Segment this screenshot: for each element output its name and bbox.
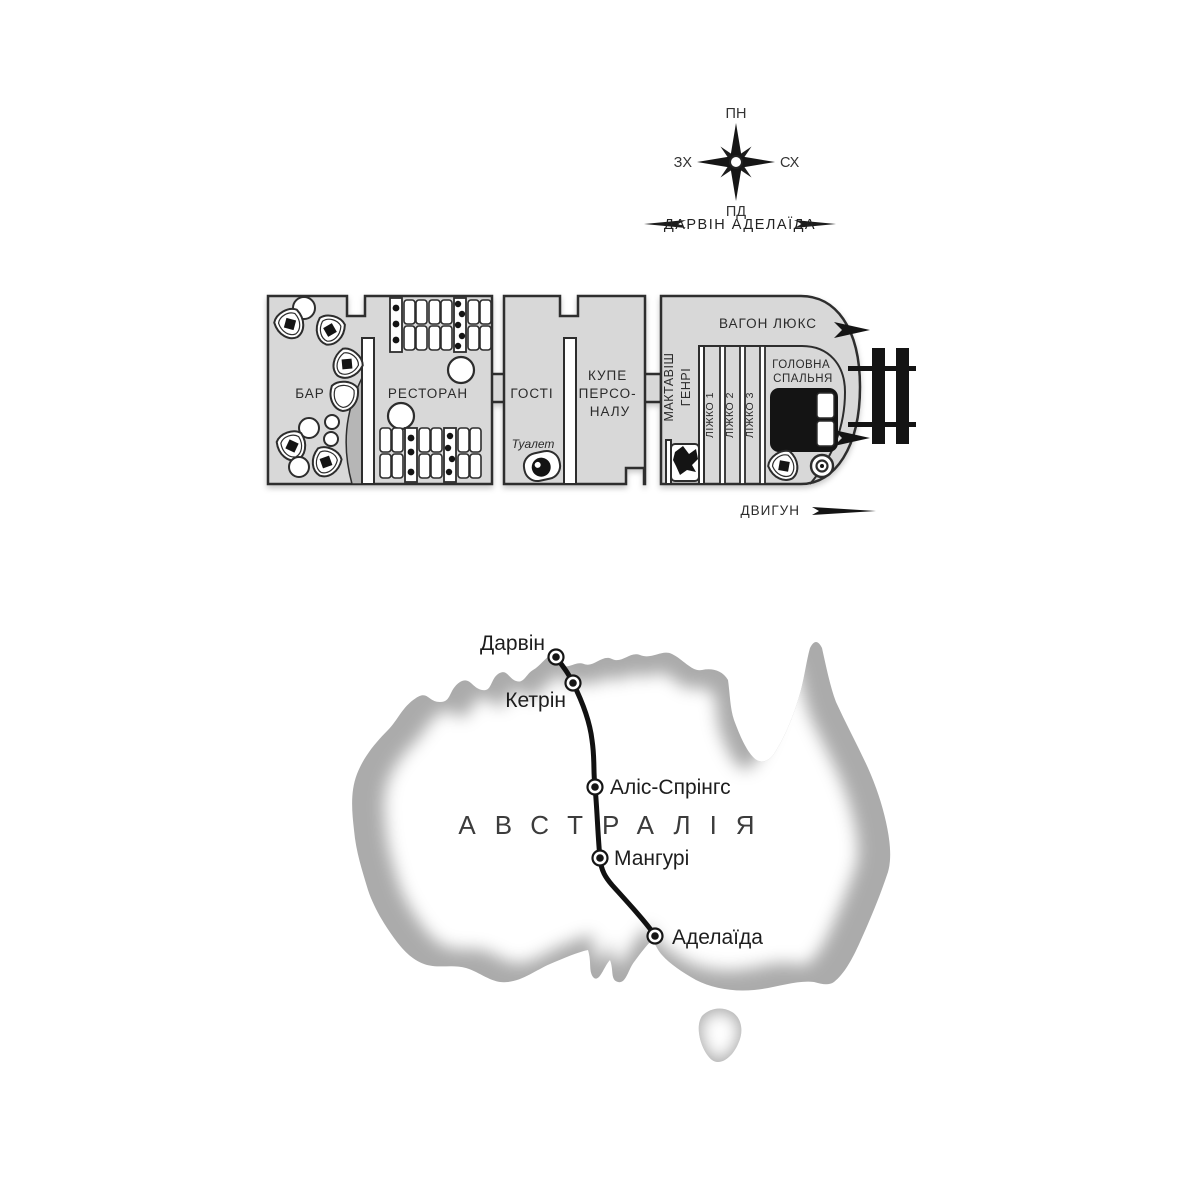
toilet-label: Туалет — [512, 437, 555, 451]
bar-label: БАР — [295, 386, 325, 401]
station-darwin-label: Дарвін — [480, 632, 545, 655]
page: ПН ПД ЗХ СХ ДАРВІН АДЕЛАЇДА — [0, 0, 1200, 1200]
train-floorplan: БАР РЕСТОРАН ГОСТІ КУПЕ ПЕРСО- НАЛУ Туал… — [252, 282, 932, 532]
master-bed-icon — [770, 388, 838, 452]
engine-label: ДВИГУН — [741, 503, 801, 518]
station-alice-springs-marker — [588, 780, 603, 795]
sink-icon — [811, 455, 833, 477]
station-manguri-marker — [593, 851, 608, 866]
station-katherine-marker — [566, 676, 581, 691]
compass-north-label: ПН — [726, 106, 747, 122]
mctavish-label-first: ГЕНРІ — [679, 368, 693, 406]
station-alice-springs-label: Аліс-Спрінгс — [610, 776, 731, 799]
station-adelaide-marker — [648, 929, 663, 944]
berth2-label: ЛІЖКО 2 — [724, 392, 736, 438]
berth3-label: ЛІЖКО 3 — [744, 392, 756, 438]
station-darwin-marker — [549, 650, 564, 665]
station-adelaide-label: Аделаїда — [672, 926, 763, 949]
australia-map: Дарвін Кетрін Аліс-Спрінгс Мангурі Адела… — [340, 608, 900, 1108]
compass-section: ПН ПД ЗХ СХ ДАРВІН АДЕЛАЇДА — [618, 104, 878, 244]
mctavish-bed-icon — [671, 444, 699, 481]
station-katherine-label: Кетрін — [505, 689, 566, 712]
route-banner-label: ДАРВІН АДЕЛАЇДА — [664, 216, 816, 233]
compass-rose-icon — [697, 123, 775, 201]
berth1-label: ЛІЖКО 1 — [704, 392, 716, 438]
country-label: АВСТРАЛІЯ — [458, 810, 773, 840]
restaurant-label: РЕСТОРАН — [388, 386, 468, 401]
lux-car-label: ВАГОН ЛЮКС — [719, 316, 817, 331]
guests-label: ГОСТІ — [510, 386, 553, 401]
compass-west-label: ЗХ — [674, 155, 693, 171]
station-manguri-label: Мангурі — [614, 847, 689, 870]
mctavish-label-last: МАКТАВІШ — [662, 353, 676, 422]
compass-east-label: СХ — [780, 155, 800, 171]
engine-arrow-icon — [812, 507, 876, 515]
